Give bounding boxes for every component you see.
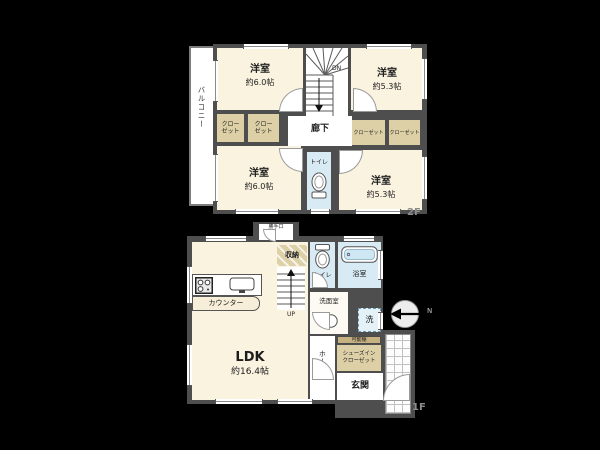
toilet-2f-label: トイレ xyxy=(307,159,331,166)
closet-label: ゼット xyxy=(221,128,239,135)
window xyxy=(213,154,218,202)
window xyxy=(355,209,401,214)
window xyxy=(366,44,412,49)
washer-label: 洗 xyxy=(359,315,380,325)
floor2-building: DN トイレ クロー ゼット クロー ゼット xyxy=(213,44,427,214)
kitchen-worktop xyxy=(192,274,262,296)
closet-2f-right1: クローゼット xyxy=(352,120,385,145)
window xyxy=(422,156,427,200)
ldk-size: 約16.4帖 xyxy=(220,367,280,378)
window xyxy=(205,236,247,241)
stairs-dn-label: DN xyxy=(332,65,341,72)
staircase-down: DN xyxy=(306,48,348,116)
room-size: 約5.3帖 xyxy=(350,190,412,200)
room-name: 洋室 xyxy=(230,64,290,76)
window xyxy=(213,60,218,102)
shoe-closet-label: クローゼット xyxy=(342,358,375,365)
storage-closet: 収納 xyxy=(277,245,307,266)
staircase-up xyxy=(277,267,305,310)
closet-label: クロー xyxy=(254,121,272,128)
window xyxy=(187,344,192,386)
compass-north-label: N xyxy=(427,307,432,315)
room-name: 洋室 xyxy=(357,68,417,80)
stairs-down-icon xyxy=(306,48,348,116)
toilet-icon xyxy=(310,172,328,200)
bathroom-label: 浴室 xyxy=(338,270,381,278)
closet-label: クロー xyxy=(221,121,239,128)
entrance-label: 玄関 xyxy=(337,381,383,392)
movable-shelf-label: 可動棚 xyxy=(338,337,380,343)
movable-shelf: 可動棚 xyxy=(337,336,381,344)
toilet-2f: トイレ xyxy=(307,152,331,210)
compass-icon xyxy=(388,297,426,331)
toilet-icon xyxy=(314,244,331,270)
window xyxy=(215,399,263,404)
window xyxy=(243,44,289,49)
closet-label: クローゼット xyxy=(353,130,383,136)
entrance-room: 玄関 xyxy=(337,373,383,400)
shoe-closet-label: シューズイン xyxy=(343,351,376,358)
stairs-up-label: UP xyxy=(277,311,305,318)
floor1-tag: 1F xyxy=(412,402,426,413)
window xyxy=(277,399,313,404)
room-size: 約6.0帖 xyxy=(230,78,290,88)
corridor-label: 廊下 xyxy=(288,124,352,135)
closet-label: ゼット xyxy=(254,128,272,135)
window xyxy=(187,266,192,304)
floor2-plan: バルコニー xyxy=(185,44,427,216)
room-name: 洋室 xyxy=(350,176,412,188)
floor1-plan: 勝手口 LDK 約16.4帖 カウンター 収納 xyxy=(185,222,417,418)
window xyxy=(378,250,383,280)
bathtub-icon xyxy=(341,246,378,263)
floor2-tag: 2F xyxy=(407,207,421,218)
stove-icon xyxy=(195,277,213,294)
window xyxy=(310,209,330,214)
stairs-up-icon xyxy=(277,267,305,310)
floor-plan-image: バルコニー xyxy=(0,0,600,450)
balcony-label: バルコニー xyxy=(197,86,206,129)
counter-label: カウンター xyxy=(193,299,259,307)
window xyxy=(378,312,383,330)
back-door: 勝手口 xyxy=(259,224,293,240)
counter-bar: カウンター xyxy=(192,296,260,311)
storage-label: 収納 xyxy=(285,251,299,259)
closet-label: クローゼット xyxy=(389,130,419,136)
room-name: 洋室 xyxy=(229,168,289,180)
closet-2f-left1: クロー ゼット xyxy=(217,114,244,142)
sink-icon xyxy=(229,277,255,294)
room-size: 約5.3帖 xyxy=(357,82,417,92)
closet-2f-right2: クローゼット xyxy=(389,120,420,145)
closet-2f-left2: クロー ゼット xyxy=(248,114,279,142)
window xyxy=(422,58,427,100)
window xyxy=(235,209,279,214)
ldk-name: LDK xyxy=(220,350,280,366)
room-size: 約6.0帖 xyxy=(229,182,289,192)
washroom-label: 洗面室 xyxy=(310,298,348,306)
bathroom: 浴室 xyxy=(338,242,381,288)
window xyxy=(343,236,375,241)
shoe-closet: シューズイン クローゼット xyxy=(337,345,381,371)
